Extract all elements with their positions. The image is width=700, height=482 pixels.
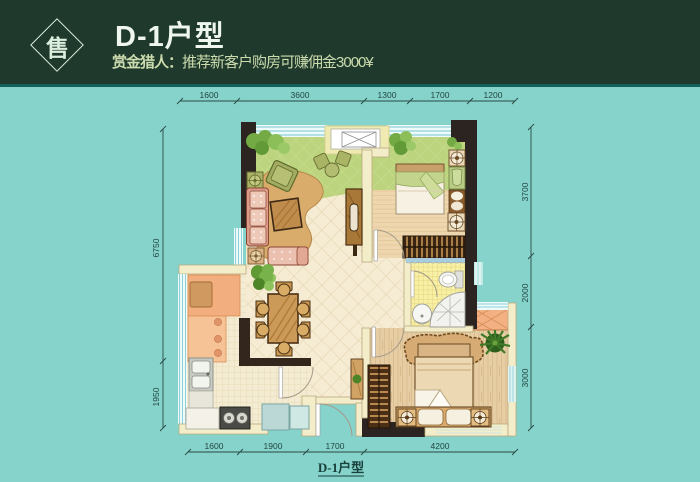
svg-text:4200: 4200 [431,441,450,451]
svg-text:6750: 6750 [151,238,161,257]
svg-text:3000: 3000 [520,368,530,387]
svg-text:1900: 1900 [264,441,283,451]
svg-text:2000: 2000 [520,283,530,302]
svg-text:D-1户型: D-1户型 [318,460,364,475]
svg-text:1700: 1700 [326,441,345,451]
svg-text:1600: 1600 [205,441,224,451]
svg-text:1300: 1300 [378,90,397,100]
svg-text:3600: 3600 [291,90,310,100]
svg-text:1200: 1200 [484,90,503,100]
svg-text:1950: 1950 [151,387,161,406]
svg-text:1700: 1700 [431,90,450,100]
svg-text:3700: 3700 [520,182,530,201]
svg-text:1600: 1600 [200,90,219,100]
